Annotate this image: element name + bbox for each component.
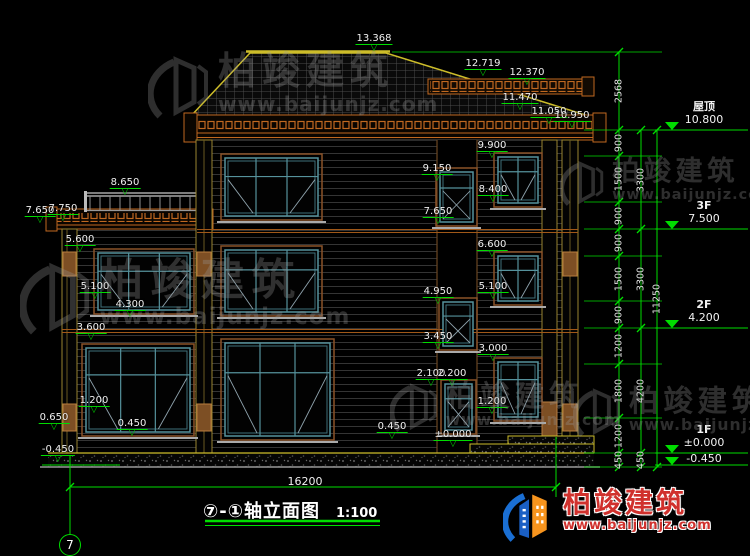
main-cornice-dentils <box>189 120 592 130</box>
level-marker <box>665 122 679 130</box>
level-marker <box>665 221 679 229</box>
cornice-endcap-left <box>184 113 197 142</box>
secondary-eave-endcap <box>582 77 594 96</box>
window <box>78 344 198 438</box>
window <box>490 153 546 209</box>
drawing-title: ⑦-①轴立面图 <box>203 497 320 523</box>
level-marker <box>665 457 679 465</box>
window <box>490 358 546 423</box>
brand-url: www.baijunjz.com <box>563 518 712 533</box>
secondary-eave-dentils <box>430 81 584 92</box>
wing-cornice-dentils <box>50 213 211 222</box>
axis-bubble: 7 <box>59 534 81 556</box>
ground-hatch <box>48 453 594 467</box>
cornice-endcap-right <box>593 113 606 142</box>
window <box>432 168 481 228</box>
cad-elevation-drawing: 13.36812.71912.37011.47011.05010.9509.90… <box>0 0 750 556</box>
window <box>90 249 198 316</box>
level-marker <box>665 320 679 328</box>
window <box>217 246 326 318</box>
step-lower <box>470 444 594 453</box>
brand-name: 柏竣建筑 <box>563 488 712 518</box>
drawing-scale: 1:100 <box>336 506 377 521</box>
brand-logo: 柏竣建筑 www.baijunjz.com <box>503 488 712 546</box>
window <box>490 252 546 307</box>
window <box>217 154 326 222</box>
drawing-geometry <box>0 0 750 556</box>
level-marker <box>665 445 679 453</box>
step-upper <box>508 436 594 444</box>
window <box>217 339 338 442</box>
title-block: ⑦-①轴立面图 1:100 <box>203 497 377 523</box>
wing-cornice-endcap <box>46 207 57 231</box>
brand-logo-icon <box>503 488 555 546</box>
